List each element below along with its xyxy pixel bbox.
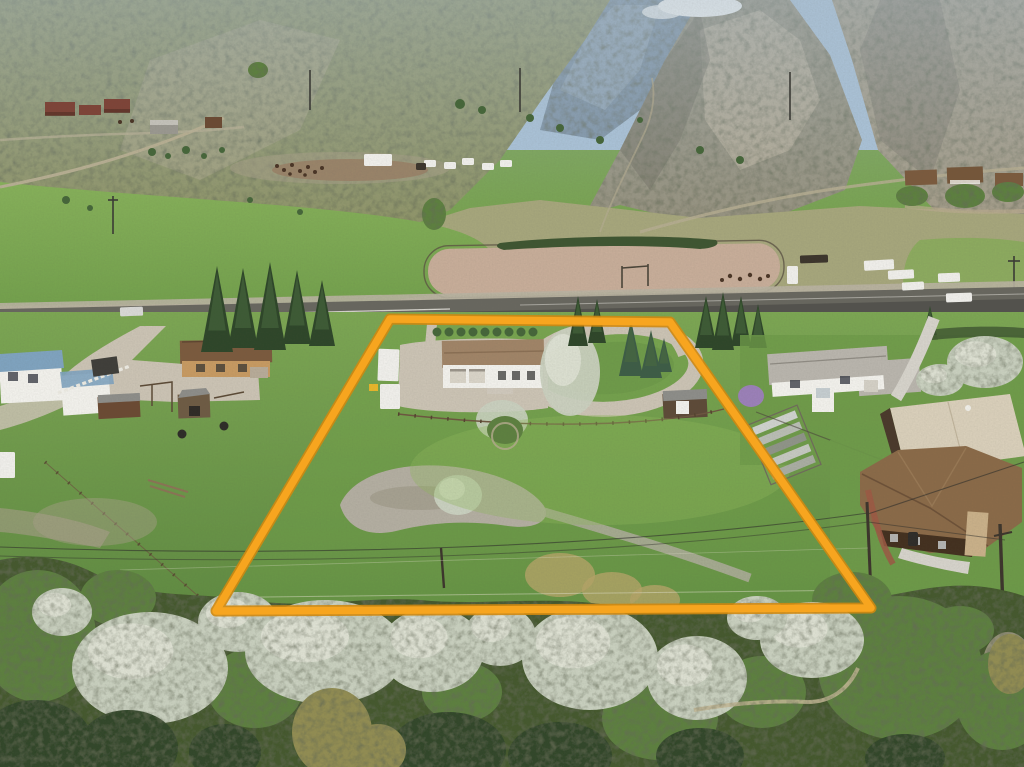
photo-grain — [0, 0, 1024, 767]
aerial-photo — [0, 0, 1024, 767]
